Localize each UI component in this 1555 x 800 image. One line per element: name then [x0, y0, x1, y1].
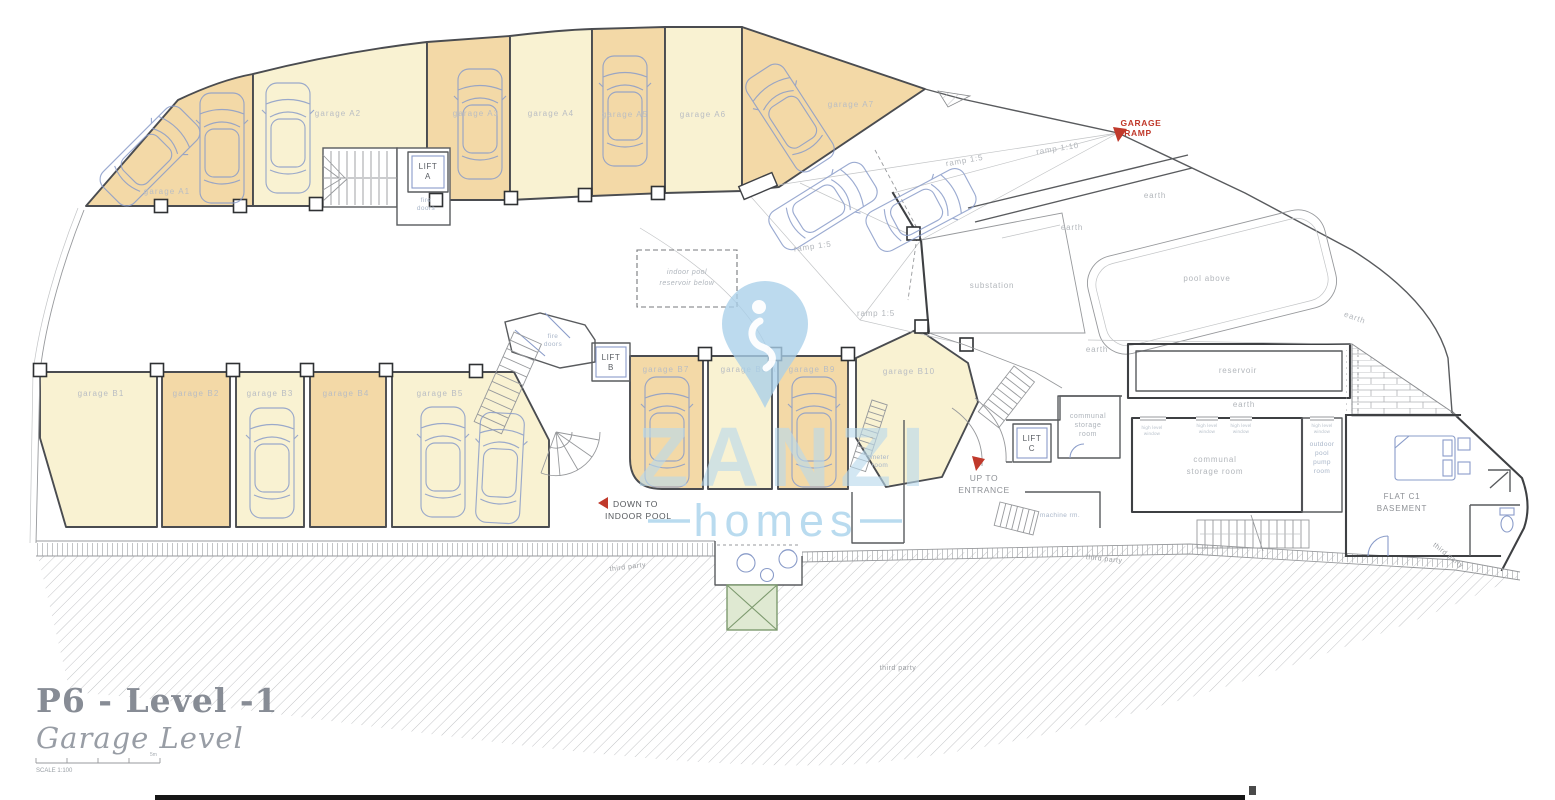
shower-icon	[1488, 470, 1510, 492]
pool-above-label: pool above	[1183, 274, 1230, 283]
garage-b1-label: garage B1	[78, 389, 125, 398]
watermark-tagline: homes	[693, 495, 858, 546]
pump-room-label3: pump	[1313, 459, 1331, 466]
garage-a4-label: garage A4	[528, 109, 574, 118]
lift-c-label2: C	[1029, 444, 1035, 453]
third-party-label: third party	[880, 665, 917, 672]
communal-small-label3: room	[1079, 431, 1097, 438]
up-to-entrance-label: UP TO	[970, 473, 999, 483]
flat-c1	[1346, 344, 1520, 556]
hlw-label2: window	[1233, 429, 1250, 434]
earth-label: earth	[1061, 223, 1083, 232]
scale-end-label: 5m	[150, 752, 157, 758]
watermark-brand: ZANZI	[637, 410, 934, 504]
garage-ramp-label2: RAMP	[1124, 128, 1151, 138]
earth-label: earth	[1086, 345, 1108, 354]
lift-b	[592, 343, 630, 381]
staircase-a	[323, 148, 450, 225]
planter-icon	[727, 585, 777, 630]
ramp-label: ramp 1:10	[1036, 141, 1080, 157]
garage-a5-label: garage A5	[602, 110, 648, 119]
third-party-ground	[36, 541, 1520, 765]
garage-b10-label: garage B10	[883, 367, 935, 376]
toilet-icon	[1500, 508, 1514, 532]
title-block: P6 - Level -1 Garage Level 5m SCALE 1:10…	[36, 681, 279, 774]
pump-room-label: outdoor	[1310, 441, 1335, 448]
fire-doors-label2: doors	[417, 205, 436, 212]
fire-doors-label: fire	[548, 333, 559, 340]
garage-b5-label: garage B5	[417, 389, 464, 398]
fire-doors-label2: doors	[544, 341, 563, 348]
rubble-icon	[1346, 350, 1362, 412]
garage-b9-label: garage B9	[789, 365, 836, 374]
lift-b-label2: B	[608, 363, 614, 372]
floor-plan-page: garage A1 garage A2 garage A3 garage A4 …	[0, 0, 1555, 800]
ramp-label: ramp 1:5	[857, 309, 895, 318]
plan-subtitle: Garage Level	[36, 721, 244, 755]
reservoir-label: reservoir	[1219, 366, 1257, 375]
indoor-pool-label2: reservoir below	[660, 280, 715, 287]
machine-room-label: machine rm.	[1040, 512, 1080, 519]
hlw-label: high level	[1230, 423, 1251, 428]
garage-a6-label: garage A6	[680, 110, 726, 119]
lift-c	[1013, 424, 1051, 462]
staircase-bottom	[994, 502, 1309, 551]
hlw-label2: window	[1144, 431, 1161, 436]
lift-a-label2: A	[425, 172, 431, 181]
garage-a7-label: garage A7	[828, 100, 874, 109]
garage-row-a	[86, 27, 925, 206]
indoor-pool-reservoir-box	[637, 250, 737, 307]
lift-c-label: LIFT	[1023, 434, 1042, 443]
floor-plan-canvas: garage A1 garage A2 garage A3 garage A4 …	[0, 0, 1555, 800]
bed-icon	[1395, 436, 1470, 480]
up-arrow-icon	[972, 456, 985, 471]
scale-label: SCALE 1:100	[36, 768, 73, 774]
communal-large-label: communal	[1193, 455, 1236, 464]
plan-title: P6 - Level -1	[36, 681, 279, 720]
pump-room-label4: room	[1314, 468, 1330, 475]
earth-label: earth	[1233, 400, 1255, 409]
scale-bar: 5m SCALE 1:100	[36, 752, 160, 774]
hlw-label: high level	[1141, 425, 1162, 430]
up-to-entrance-label2: ENTRANCE	[958, 485, 1010, 495]
garage-b3-label: garage B3	[247, 389, 294, 398]
chair-icon	[737, 554, 755, 572]
communal-small-label: communal	[1070, 413, 1106, 420]
hlw-label2: window	[1199, 429, 1216, 434]
garage-a3-label: garage A3	[453, 109, 499, 118]
watermark: ZANZI homes	[637, 281, 934, 546]
indoor-pool-label: indoor pool	[667, 269, 707, 276]
communal-large-label2: storage room	[1187, 467, 1244, 476]
hlw-label2: window	[1314, 429, 1331, 434]
earth-label: earth	[1144, 191, 1166, 200]
communal-small-label2: storage	[1075, 422, 1102, 429]
down-arrow-icon	[598, 497, 608, 509]
ramp-label: ramp 1:5	[945, 153, 984, 168]
garage-b4-label: garage B4	[323, 389, 370, 398]
bottom-bar-marker	[1249, 786, 1256, 795]
door-arc-icon	[1368, 536, 1388, 556]
garage-b5-area	[392, 372, 549, 527]
staircase-c	[978, 366, 1034, 428]
fire-doors-label: fire	[421, 197, 432, 204]
garage-b7-label: garage B7	[643, 365, 690, 374]
ramp-label: ramp 1:5	[793, 239, 832, 253]
chair-icon	[779, 550, 797, 568]
hlw-label: high level	[1311, 423, 1332, 428]
pump-room-label2: pool	[1315, 450, 1329, 457]
substation-label: substation	[970, 281, 1014, 290]
garage-b2-label: garage B2	[173, 389, 220, 398]
garage-a1-label: garage A1	[144, 187, 190, 196]
garage-ramp-label: GARAGE	[1121, 118, 1162, 128]
lift-a-label: LIFT	[419, 162, 438, 171]
bottom-bar	[155, 795, 1245, 800]
lift-b-label: LIFT	[602, 353, 621, 362]
down-to-pool-label2: INDOOR POOL	[605, 511, 672, 521]
garage-a2-label: garage A2	[315, 109, 361, 118]
hlw-label: high level	[1196, 423, 1217, 428]
masonry-icon	[1352, 344, 1458, 416]
table-icon	[761, 569, 774, 582]
down-to-pool-label: DOWN TO	[613, 499, 658, 509]
earth-label: earth	[1343, 310, 1367, 326]
flat-c1-label: FLAT C1	[1384, 492, 1421, 501]
flat-c1-label2: BASEMENT	[1377, 504, 1427, 513]
